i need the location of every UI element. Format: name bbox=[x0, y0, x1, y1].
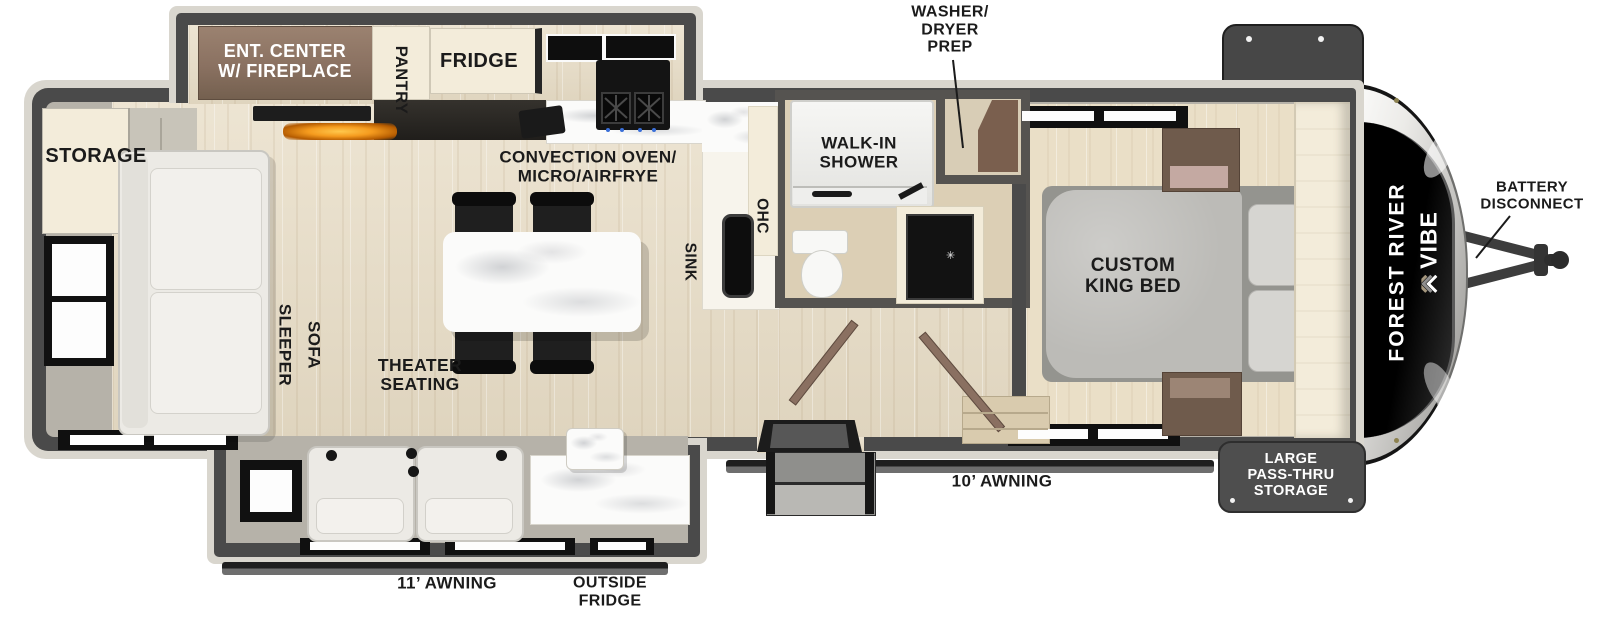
bedroom-cabinet-inset bbox=[1170, 378, 1230, 398]
theater-seat-cushion bbox=[316, 498, 404, 534]
pass-thru-rivet bbox=[1348, 498, 1353, 503]
sofa-cushion bbox=[150, 168, 262, 290]
tv-strip bbox=[253, 106, 371, 121]
cupholder bbox=[496, 450, 507, 461]
window-slat bbox=[1022, 111, 1094, 121]
label-10ft-awning: 10’ AWNING bbox=[952, 473, 1053, 492]
brand-vibe: VIBE bbox=[1416, 211, 1441, 293]
entry-step-rail bbox=[766, 452, 775, 514]
range-knob bbox=[638, 128, 642, 132]
label-11ft-awning: 11’ AWNING bbox=[397, 575, 497, 594]
shower-door-handle bbox=[812, 191, 852, 197]
step-line bbox=[962, 412, 1048, 414]
vanity-fan-icon: ✳ bbox=[946, 250, 958, 262]
counter-stool bbox=[566, 428, 624, 470]
window-slat bbox=[598, 542, 646, 550]
range-knob bbox=[652, 128, 656, 132]
front-wardrobe bbox=[1294, 102, 1350, 438]
window-slat bbox=[310, 542, 420, 550]
sofa-cushion bbox=[150, 292, 262, 414]
dinette-chair-back bbox=[530, 360, 594, 374]
brand-forest-river: FOREST RIVER bbox=[1385, 182, 1408, 361]
window-slat bbox=[1104, 111, 1176, 121]
cap-screw bbox=[1394, 98, 1399, 103]
label-outside-fridge: OUTSIDEFRIDGE bbox=[573, 574, 647, 609]
window-slat bbox=[70, 435, 144, 445]
range-window bbox=[604, 34, 676, 60]
label-custom-king-bed: CUSTOMKING BED bbox=[1085, 256, 1181, 298]
window-slat bbox=[1018, 429, 1088, 439]
label-washer-dryer-prep: WASHER/ DRYER PREP bbox=[911, 4, 988, 57]
window-slat bbox=[1098, 429, 1168, 439]
floorplan-canvas: FOREST RIVER VIBE ENT. CENTERW/ FIREPLAC… bbox=[0, 0, 1600, 619]
label-battery-disconnect: BATTERY DISCONNECT bbox=[1480, 180, 1583, 213]
burner-grate bbox=[634, 92, 664, 124]
range-window bbox=[546, 34, 604, 62]
entry-step bbox=[775, 482, 865, 515]
label-walk-in-shower: WALK-INSHOWER bbox=[820, 134, 899, 171]
window-pane bbox=[52, 244, 106, 296]
window-pane bbox=[52, 302, 106, 358]
cupholder bbox=[406, 448, 417, 459]
dinette-chair-back bbox=[452, 192, 516, 206]
pass-thru-rivet bbox=[1230, 498, 1235, 503]
vanity-dark bbox=[906, 214, 974, 300]
step-line bbox=[962, 428, 1048, 430]
sofa-backrest bbox=[122, 154, 148, 428]
label-sleeper: SLEEPER bbox=[275, 304, 294, 386]
window-slat bbox=[154, 435, 226, 445]
vibe-chevron-icon bbox=[1421, 275, 1437, 293]
range-knob bbox=[620, 128, 624, 132]
window-slat bbox=[455, 542, 565, 550]
fireplace-glow bbox=[283, 123, 397, 140]
bedroom-cabinet-inset bbox=[1170, 166, 1228, 188]
cupholder bbox=[408, 466, 419, 477]
label-sofa: SOFA bbox=[304, 321, 323, 369]
entry-step-rail bbox=[865, 452, 874, 514]
cap-screw bbox=[1394, 438, 1399, 443]
range-knob bbox=[606, 128, 610, 132]
window-pane bbox=[250, 470, 292, 512]
kitchen-island bbox=[443, 232, 641, 332]
toilet-bowl bbox=[801, 250, 843, 298]
dinette-chair-back bbox=[530, 192, 594, 206]
label-ent-center: ENT. CENTERW/ FIREPLACE bbox=[218, 42, 352, 82]
label-convection: CONVECTION OVEN/MICRO/AIRFRYE bbox=[499, 148, 676, 185]
label-ohc: OHC bbox=[753, 198, 770, 234]
label-sink: SINK bbox=[681, 243, 698, 282]
kitchen-sink bbox=[722, 214, 754, 298]
label-pantry: PANTRY bbox=[392, 46, 410, 114]
entry-door-inner bbox=[770, 424, 849, 448]
cupholder bbox=[326, 450, 337, 461]
label-storage: STORAGE bbox=[45, 145, 146, 167]
propane-box-rivet bbox=[1318, 36, 1324, 42]
burner-grate bbox=[601, 92, 631, 124]
label-theater-seating: THEATERSEATING bbox=[378, 356, 462, 395]
hitch-a-frame bbox=[1450, 218, 1570, 302]
label-pass-thru-storage: LARGE PASS-THRU STORAGE bbox=[1247, 452, 1334, 500]
label-fridge: FRIDGE bbox=[440, 50, 518, 72]
propane-box-rivet bbox=[1246, 36, 1252, 42]
theater-seat-cushion bbox=[425, 498, 513, 534]
